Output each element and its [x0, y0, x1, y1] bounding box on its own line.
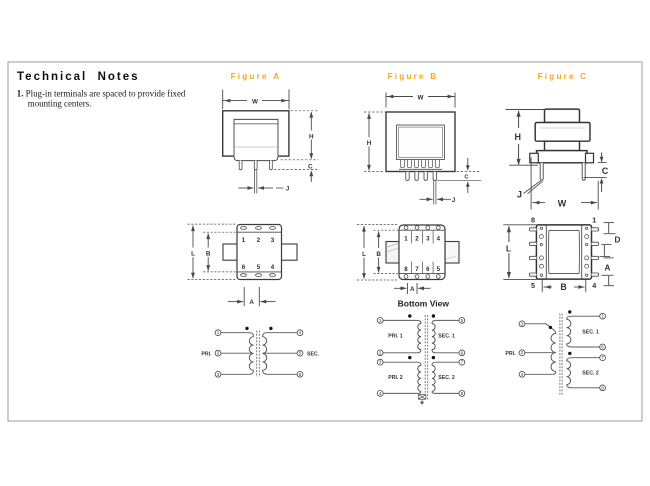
- svg-text:5: 5: [531, 281, 535, 290]
- svg-text:B: B: [560, 282, 566, 292]
- svg-text:mounting centers.: mounting centers.: [28, 98, 92, 108]
- svg-text:PRI.: PRI.: [505, 351, 516, 357]
- svg-text:4: 4: [592, 281, 596, 290]
- svg-text:H: H: [367, 140, 372, 147]
- svg-text:PRI. 1: PRI. 1: [388, 333, 403, 339]
- svg-text:SEC. 2: SEC. 2: [582, 371, 599, 377]
- svg-text:A: A: [249, 299, 254, 306]
- svg-text:J: J: [452, 197, 456, 204]
- svg-text:8: 8: [531, 215, 535, 224]
- svg-text:J: J: [286, 186, 290, 193]
- svg-text:PRI. 2: PRI. 2: [388, 375, 403, 381]
- svg-text:Figure A: Figure A: [231, 72, 282, 81]
- svg-text:A: A: [410, 286, 415, 293]
- svg-text:H: H: [515, 132, 522, 142]
- svg-text:SEC. 1: SEC. 1: [582, 329, 599, 335]
- svg-text:SEC. 1: SEC. 1: [438, 333, 455, 339]
- svg-text:C: C: [602, 166, 609, 176]
- svg-text:Technical Notes: Technical Notes: [17, 71, 140, 83]
- svg-text:Bottom View: Bottom View: [398, 299, 450, 309]
- svg-text:W: W: [558, 198, 567, 208]
- svg-text:B: B: [376, 251, 381, 258]
- svg-text:D: D: [615, 235, 621, 244]
- svg-text:B: B: [206, 251, 211, 258]
- svg-text:L: L: [191, 251, 195, 258]
- svg-text:1: 1: [592, 215, 596, 224]
- svg-text:L: L: [506, 245, 511, 254]
- svg-text:SEC. 2: SEC. 2: [438, 375, 455, 381]
- svg-text:W: W: [252, 98, 258, 105]
- svg-text:Figure B: Figure B: [388, 72, 439, 81]
- svg-text:C: C: [308, 163, 313, 170]
- svg-text:Figure C: Figure C: [538, 72, 589, 81]
- svg-text:PRI.: PRI.: [201, 351, 212, 357]
- svg-text:1. Plug-in terminals are space: 1. Plug-in terminals are spaced to provi…: [17, 88, 186, 98]
- svg-text:A: A: [605, 263, 611, 272]
- svg-text:H: H: [309, 134, 314, 141]
- svg-text:J: J: [517, 190, 522, 200]
- svg-text:L: L: [362, 251, 366, 258]
- svg-text:W: W: [418, 95, 424, 102]
- svg-text:SEC.: SEC.: [307, 351, 320, 357]
